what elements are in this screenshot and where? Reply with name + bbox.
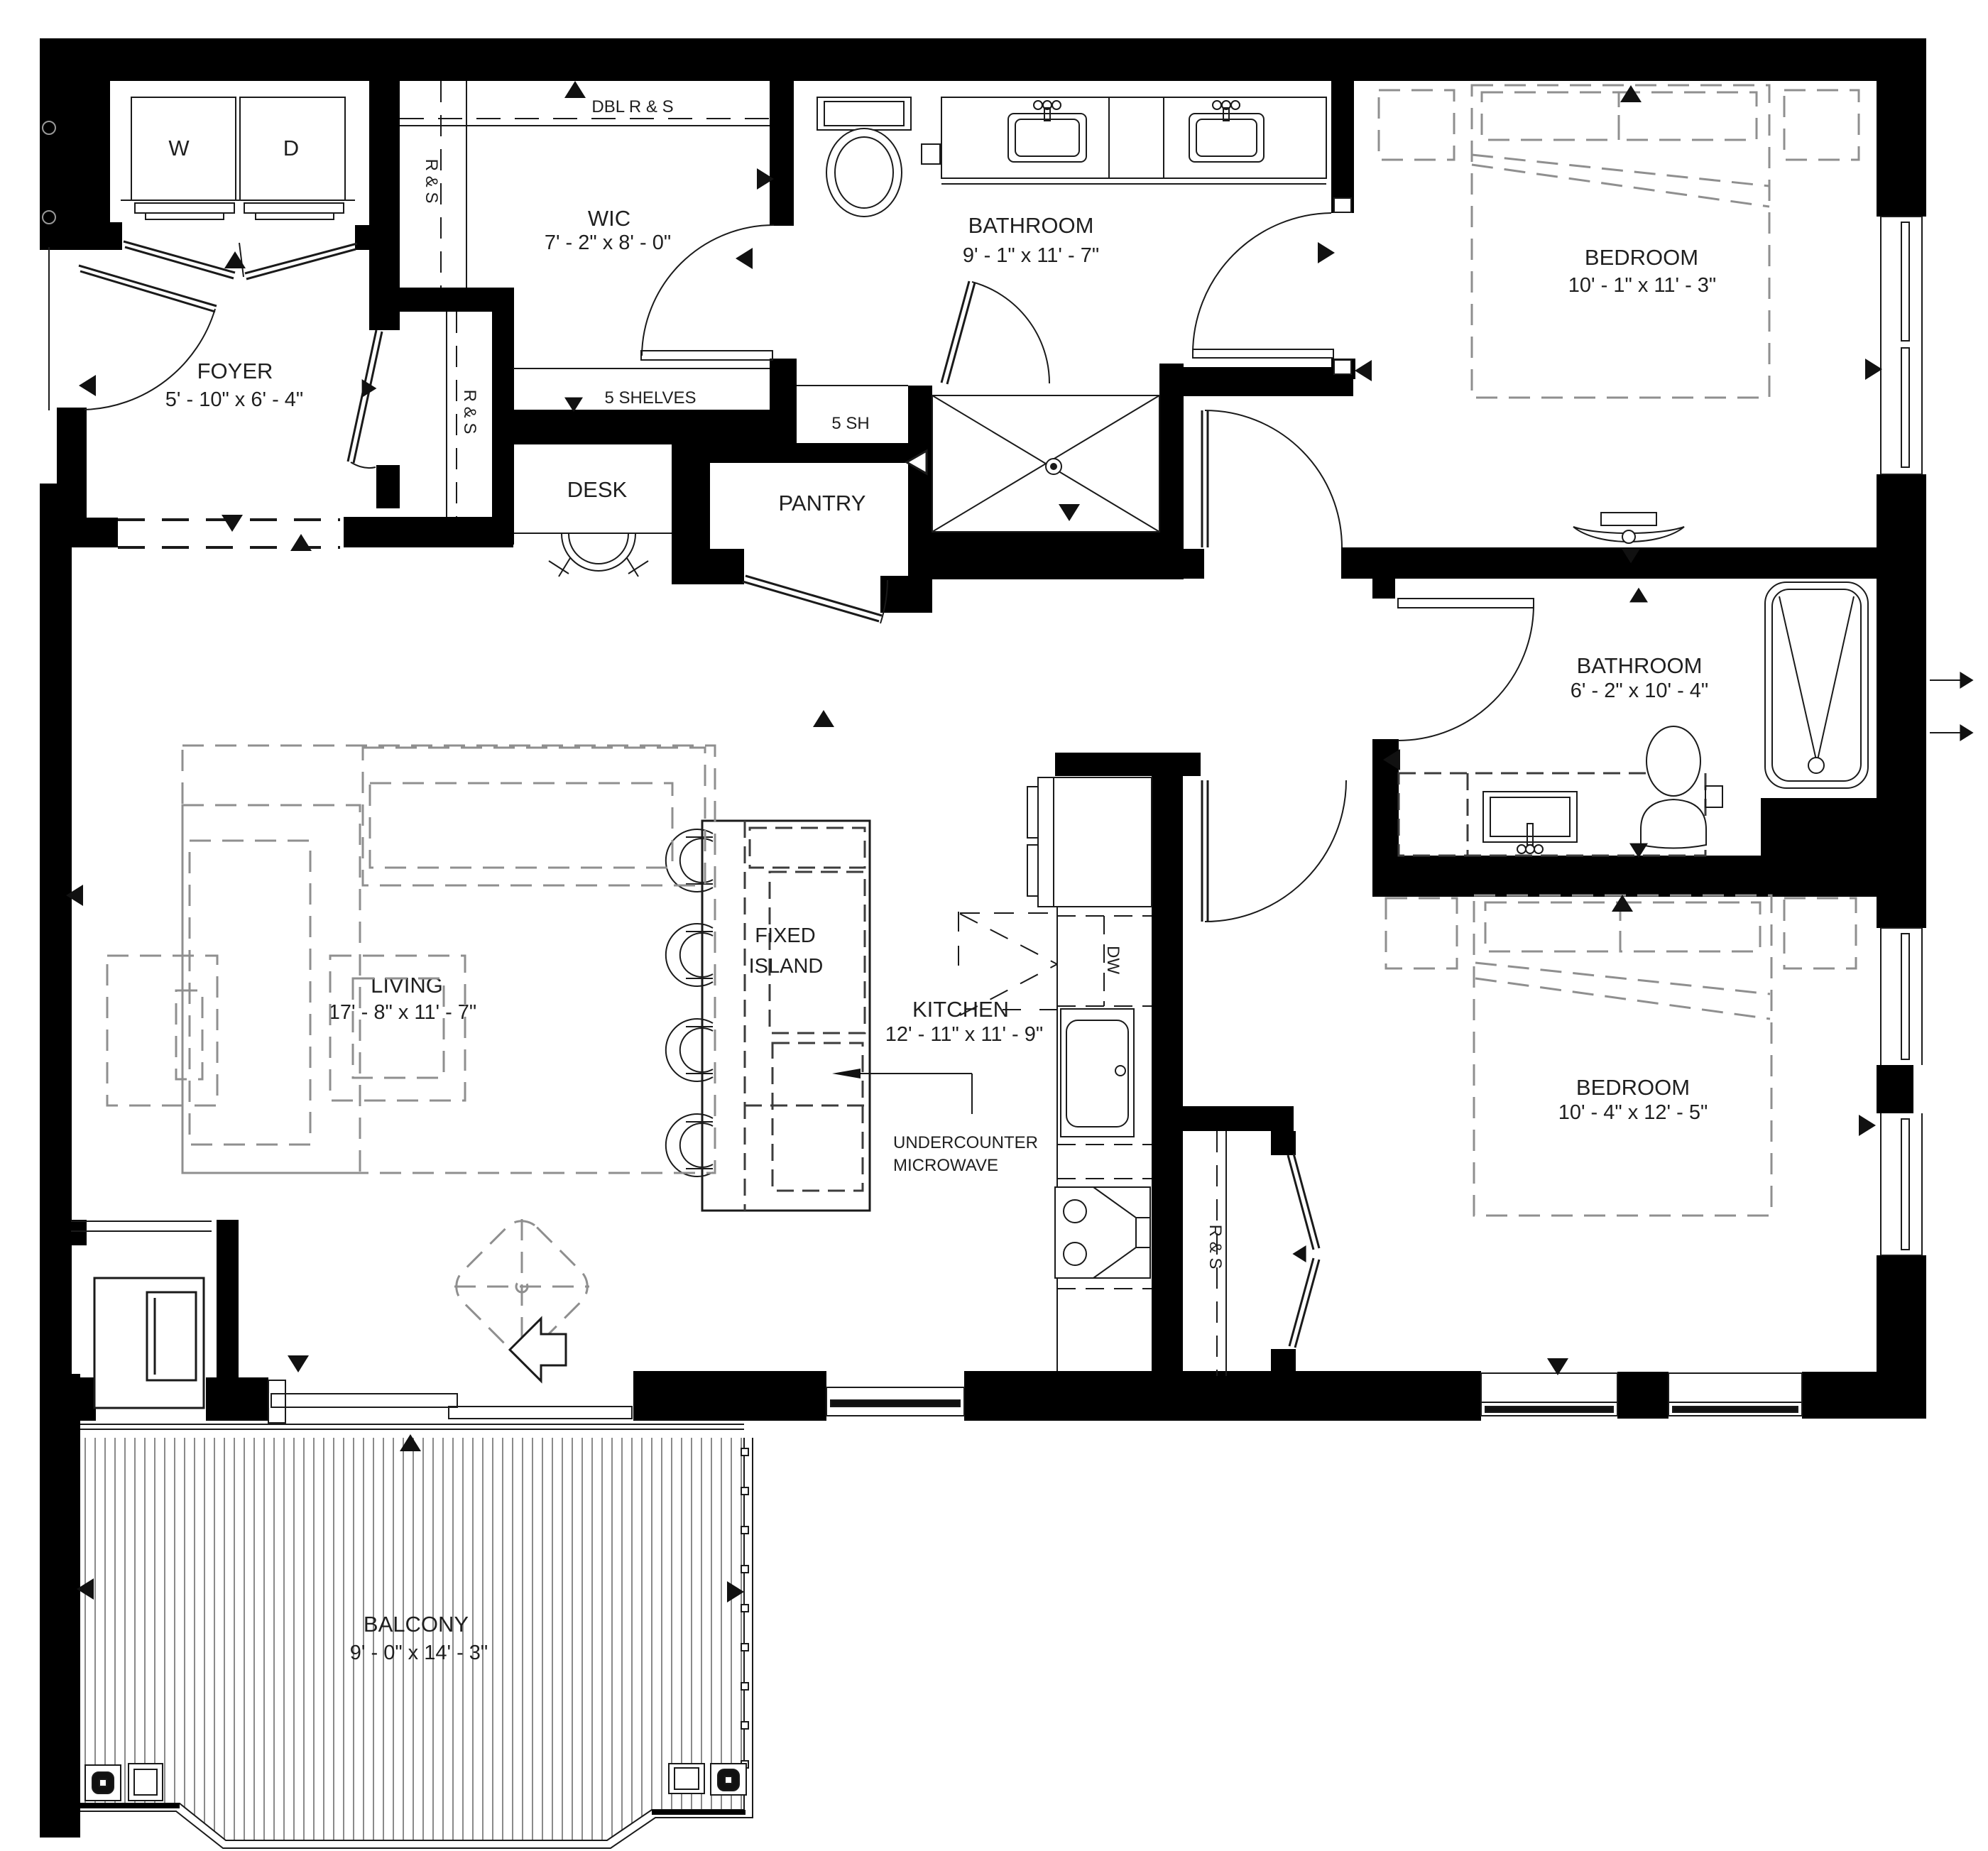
svg-text:FOYER: FOYER (197, 359, 273, 383)
svg-text:LIVING: LIVING (371, 973, 443, 998)
svg-text:DESK: DESK (567, 477, 628, 502)
svg-text:9' - 1" x 11' - 7": 9' - 1" x 11' - 7" (963, 244, 1099, 267)
svg-text:5 SHELVES: 5 SHELVES (605, 388, 697, 408)
svg-text:MICROWAVE: MICROWAVE (893, 1156, 998, 1175)
svg-text:FIXED: FIXED (755, 924, 815, 947)
svg-text:17' - 8" x 11' - 7": 17' - 8" x 11' - 7" (329, 1001, 476, 1024)
svg-text:BATHROOM: BATHROOM (1577, 653, 1703, 678)
svg-text:W: W (168, 136, 190, 160)
svg-text:KITCHEN: KITCHEN (912, 997, 1009, 1022)
svg-text:DBL R & S: DBL R & S (591, 97, 673, 116)
svg-text:UNDERCOUNTER: UNDERCOUNTER (893, 1133, 1038, 1152)
svg-text:6' - 2" x 10' - 4": 6' - 2" x 10' - 4" (1571, 679, 1708, 702)
svg-text:WIC: WIC (588, 206, 630, 231)
svg-text:D: D (283, 136, 299, 160)
svg-text:PANTRY: PANTRY (779, 491, 866, 515)
svg-text:DW: DW (1103, 946, 1123, 974)
svg-text:ISLAND: ISLAND (749, 955, 824, 978)
svg-text:10' - 1" x 11' - 3": 10' - 1" x 11' - 3" (1568, 274, 1716, 297)
svg-text:12' - 11" x 11' - 9": 12' - 11" x 11' - 9" (885, 1023, 1043, 1046)
svg-text:5' - 10" x 6' - 4": 5' - 10" x 6' - 4" (165, 388, 303, 411)
svg-text:7' - 2" x 8' - 0": 7' - 2" x 8' - 0" (545, 231, 671, 254)
svg-text:BATHROOM: BATHROOM (968, 213, 1094, 238)
svg-text:R & S: R & S (422, 159, 441, 204)
svg-text:10' - 4" x 12' - 5": 10' - 4" x 12' - 5" (1558, 1101, 1708, 1124)
svg-text:5 SH: 5 SH (831, 414, 869, 433)
svg-text:BEDROOM: BEDROOM (1585, 245, 1698, 270)
svg-text:R & S: R & S (460, 390, 479, 435)
svg-text:9' - 0" x 14' - 3": 9' - 0" x 14' - 3" (350, 1642, 488, 1664)
svg-text:BALCONY: BALCONY (364, 1612, 469, 1637)
svg-text:BEDROOM: BEDROOM (1576, 1075, 1690, 1100)
svg-text:R & S: R & S (1206, 1225, 1225, 1270)
